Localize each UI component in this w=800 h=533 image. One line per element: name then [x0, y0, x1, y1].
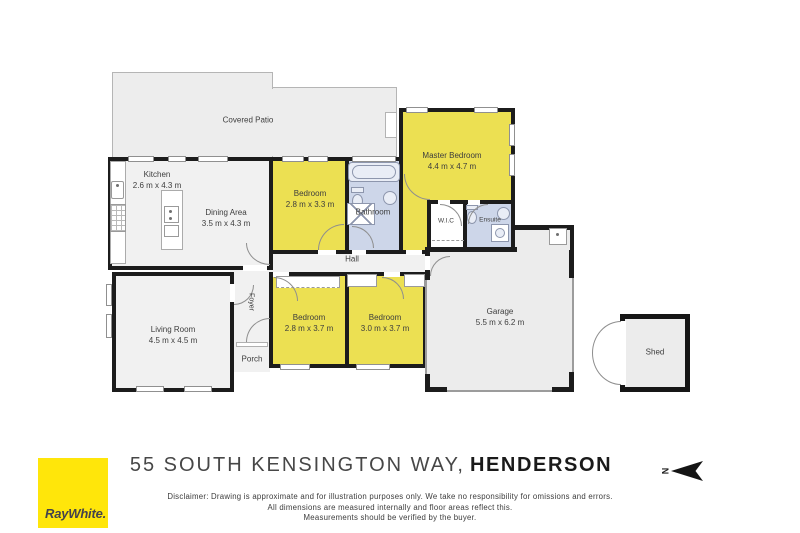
- burner-dot: [169, 210, 172, 213]
- bathtub-inner: [352, 165, 396, 179]
- disclaimer-line-1: Disclaimer: Drawing is approximate and f…: [0, 492, 780, 503]
- wic-shelf: [432, 240, 464, 241]
- shower-drain: [495, 228, 505, 238]
- stove-icon: [110, 204, 126, 232]
- door-opening: [425, 256, 430, 270]
- wall-segment: [425, 387, 447, 392]
- window: [509, 124, 515, 146]
- porch-step: [236, 342, 268, 347]
- door-opening: [318, 250, 336, 255]
- raywhite-logo-text: RayWhite.: [45, 506, 106, 521]
- room-label-wic: W.I.C: [438, 218, 454, 225]
- window: [356, 364, 390, 370]
- window: [280, 364, 310, 370]
- window: [106, 284, 112, 306]
- room-label-bedroom-1: Bedroom2.8 m x 3.3 m: [286, 188, 334, 210]
- room-label-bedroom-2: Bedroom2.8 m x 3.7 m: [285, 312, 333, 334]
- faucet-dot: [556, 233, 559, 236]
- north-arrow-icon: [671, 461, 703, 481]
- shed-door-arc: [592, 321, 621, 353]
- address-suburb: HENDERSON: [470, 454, 612, 476]
- door-opening: [406, 250, 422, 255]
- island-cabinet: [164, 225, 179, 237]
- sink-icon: [383, 191, 397, 205]
- toilet-tank-icon: [351, 187, 364, 193]
- covered-patio-area-right: [272, 87, 397, 158]
- window: [474, 107, 498, 113]
- disclaimer: Disclaimer: Drawing is approximate and f…: [0, 492, 780, 524]
- room-label-ensuite: Ensuite: [479, 217, 501, 224]
- room-label-covered-patio: Covered Patio: [223, 115, 274, 126]
- room-label-hall: Hall: [345, 254, 359, 265]
- room-label-porch: Porch: [242, 354, 263, 365]
- raywhite-logo: RayWhite.: [38, 458, 108, 528]
- door-opening: [243, 265, 267, 271]
- address-title: 55 SOUTH KENSINGTON WAY,HENDERSON: [0, 454, 742, 477]
- window: [406, 107, 428, 113]
- north-indicator: N: [662, 461, 703, 481]
- burner-dot: [169, 217, 172, 220]
- north-letter: N: [660, 468, 670, 475]
- room-label-foyer: Foyer: [246, 293, 257, 311]
- floor-plan-page: Covered Patio Kitchen2.6 m x 4.3 m Dinin…: [0, 0, 800, 533]
- faucet-dot: [116, 184, 119, 187]
- disclaimer-line-3: Measurements should be verified by the b…: [0, 513, 780, 524]
- room-label-living: Living Room4.5 m x 4.5 m: [149, 324, 197, 346]
- room-label-shed: Shed: [646, 347, 665, 358]
- wall-segment: [425, 247, 517, 252]
- room-label-dining: Dining Area3.5 m x 4.3 m: [202, 207, 250, 229]
- window: [282, 156, 304, 162]
- wall-segment: [569, 250, 574, 278]
- door-opening: [384, 272, 400, 277]
- window: [168, 156, 186, 162]
- shed-door-arc: [592, 353, 621, 385]
- master-entry-join: [403, 199, 427, 205]
- closet: [404, 274, 425, 287]
- wall-segment: [569, 372, 574, 392]
- room-label-kitchen: Kitchen2.6 m x 4.3 m: [133, 169, 181, 191]
- window: [184, 386, 212, 392]
- window: [128, 156, 154, 162]
- patio-pillar: [385, 112, 397, 138]
- cooktop-icon: [164, 206, 179, 223]
- window: [308, 156, 328, 162]
- window: [106, 314, 112, 338]
- laundry-tub-icon: [549, 228, 567, 245]
- window: [136, 386, 164, 392]
- room-label-master-bedroom: Master Bedroom4.4 m x 4.7 m: [422, 150, 481, 172]
- room-label-bathroom: Bathroom: [356, 207, 391, 218]
- room-label-bedroom-3: Bedroom3.0 m x 3.7 m: [361, 312, 409, 334]
- room-label-garage: Garage5.5 m x 6.2 m: [476, 306, 524, 328]
- window: [509, 154, 515, 176]
- window: [198, 156, 228, 162]
- closet: [347, 274, 377, 287]
- disclaimer-line-2: All dimensions are measured internally a…: [0, 503, 780, 514]
- address-street: 55 SOUTH KENSINGTON WAY,: [130, 454, 465, 476]
